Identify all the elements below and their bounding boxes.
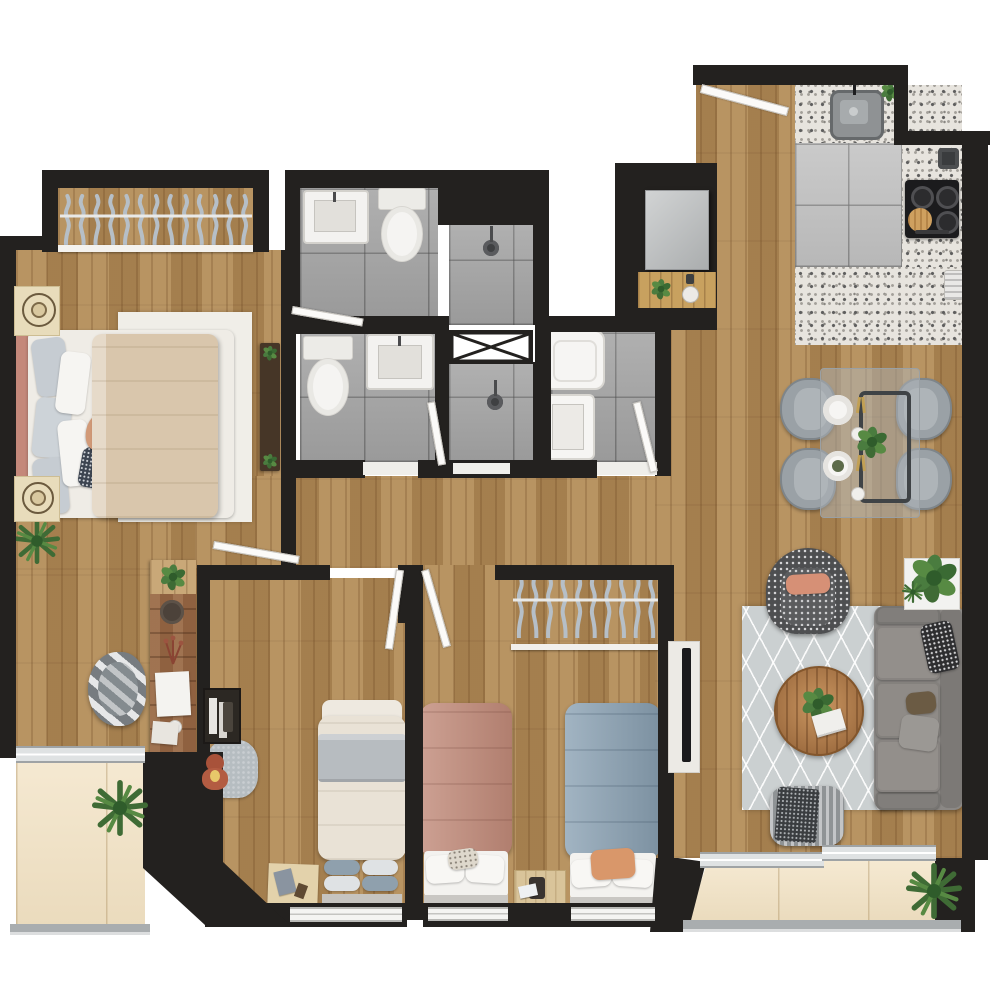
centerpiece-plant-icon bbox=[855, 425, 889, 459]
coffee-table bbox=[774, 666, 864, 756]
espresso-maker-icon bbox=[944, 270, 964, 300]
table-lamp-icon bbox=[22, 482, 54, 514]
shower2-arm bbox=[494, 380, 497, 396]
cup-icon bbox=[682, 286, 699, 303]
plant-icon bbox=[262, 345, 278, 361]
folded-blanket bbox=[362, 876, 398, 891]
bottle-icon bbox=[686, 274, 694, 284]
wall bbox=[438, 170, 538, 225]
bedroom3-window bbox=[428, 907, 508, 921]
plant-icon bbox=[650, 278, 672, 300]
desk-clock-icon bbox=[160, 600, 184, 624]
wall bbox=[253, 170, 269, 252]
living-plant-small-icon bbox=[902, 580, 924, 604]
dining-table bbox=[820, 368, 920, 518]
nightstand-top bbox=[14, 286, 60, 336]
bathroom2-sink bbox=[366, 334, 434, 390]
sofa-pillow-gray bbox=[898, 714, 940, 753]
bathroom1-sink bbox=[303, 190, 369, 244]
threshold bbox=[453, 463, 510, 474]
bedroom2-window bbox=[290, 907, 402, 922]
shower2-floor bbox=[449, 364, 533, 462]
master-closet-hangers bbox=[60, 192, 252, 248]
main-balcony-plant-icon bbox=[906, 862, 962, 920]
wall bbox=[693, 65, 898, 85]
dried-sprigs-icon bbox=[158, 634, 188, 668]
wall bbox=[535, 316, 671, 332]
tv-icon bbox=[682, 648, 691, 762]
wall bbox=[962, 143, 988, 860]
pot-icon bbox=[938, 148, 959, 169]
living-tv-console bbox=[668, 641, 700, 773]
teddy-bear-icon bbox=[200, 754, 230, 792]
faucet-icon bbox=[333, 192, 336, 202]
bathroom1-toilet bbox=[376, 186, 426, 268]
faucet-icon bbox=[398, 336, 401, 346]
desk-chair bbox=[88, 652, 146, 726]
bedroom2-bed bbox=[318, 698, 406, 910]
master-desk bbox=[150, 560, 196, 754]
blue-duvet bbox=[565, 703, 661, 859]
folded-blanket bbox=[324, 876, 360, 891]
folded-blanket bbox=[324, 860, 360, 875]
pink-duvet bbox=[420, 703, 512, 857]
washing-machine bbox=[543, 330, 605, 390]
master-tv-console bbox=[260, 343, 280, 471]
burner-icon bbox=[911, 186, 934, 209]
bed-blue bbox=[565, 703, 661, 909]
kids-closet-shelf bbox=[511, 644, 659, 650]
bathroom2-toilet bbox=[301, 334, 353, 418]
sofa-throw-brown bbox=[905, 690, 937, 715]
fringed-throw bbox=[774, 787, 820, 844]
shower1-arm bbox=[490, 226, 493, 242]
books-icon bbox=[209, 698, 217, 734]
wall bbox=[197, 565, 330, 580]
desk-plant-icon bbox=[159, 563, 187, 591]
wall bbox=[495, 565, 674, 580]
main-balcony-sliding-door bbox=[822, 845, 936, 861]
main-balcony-railing bbox=[683, 920, 961, 932]
right-wall-window-notch bbox=[988, 424, 1000, 454]
wall bbox=[42, 170, 269, 188]
pillow-orange bbox=[590, 848, 636, 881]
kids-closet-hangers bbox=[513, 572, 659, 638]
pouf bbox=[770, 786, 844, 846]
wall bbox=[285, 460, 365, 478]
bed-pink bbox=[420, 703, 512, 909]
wall bbox=[285, 316, 449, 334]
wall bbox=[535, 460, 597, 478]
entry-niche bbox=[615, 163, 717, 330]
niche-cabinet bbox=[645, 190, 709, 270]
kitchen-floor bbox=[795, 143, 902, 267]
niche-shelf bbox=[638, 272, 716, 308]
main-balcony-sliding-door bbox=[700, 852, 824, 868]
kitchen-sink bbox=[830, 90, 884, 140]
plate-with-food bbox=[823, 451, 853, 481]
armchair bbox=[766, 548, 850, 634]
desk-paper bbox=[155, 671, 191, 717]
armchair-salmon-pillow bbox=[786, 573, 831, 595]
master-balcony-railing bbox=[10, 924, 150, 935]
wall bbox=[285, 188, 300, 318]
master-balcony-sliding-door bbox=[16, 746, 145, 763]
cutting-board-icon bbox=[908, 208, 932, 232]
master-corner-plant-icon bbox=[14, 518, 60, 564]
threshold bbox=[363, 462, 418, 475]
kitchen-counter-bottom bbox=[795, 267, 962, 345]
master-duvet bbox=[92, 334, 218, 518]
floor-plan bbox=[0, 0, 1000, 1000]
sofa-armrest bbox=[876, 792, 940, 810]
master-balcony-plant-icon bbox=[92, 778, 148, 838]
shower2-head-icon bbox=[487, 394, 503, 410]
toys-on-mat bbox=[276, 870, 306, 900]
table-lamp-icon bbox=[22, 293, 56, 327]
gray-band bbox=[318, 734, 406, 782]
sofa bbox=[874, 606, 964, 810]
plant-icon bbox=[262, 453, 278, 469]
cup-icon bbox=[851, 487, 865, 501]
gas-cooktop bbox=[905, 180, 959, 238]
burner-icon bbox=[936, 186, 959, 209]
master-closet-shelf bbox=[58, 245, 254, 252]
wall bbox=[655, 316, 671, 476]
plate bbox=[823, 395, 853, 425]
bedroom2-niche-shelf bbox=[203, 688, 241, 744]
figurine-icon bbox=[223, 702, 233, 732]
folded-blanket bbox=[362, 860, 398, 875]
wall bbox=[535, 316, 551, 476]
desk-tray bbox=[151, 721, 179, 745]
wall bbox=[285, 170, 438, 188]
outside-notch-cover bbox=[652, 80, 696, 164]
wall bbox=[418, 460, 451, 478]
shower1-head-icon bbox=[483, 240, 499, 256]
nightstand-bottom bbox=[14, 476, 60, 522]
bedroom3-window bbox=[571, 907, 655, 921]
service-shaft bbox=[449, 330, 533, 364]
wall bbox=[533, 170, 549, 325]
